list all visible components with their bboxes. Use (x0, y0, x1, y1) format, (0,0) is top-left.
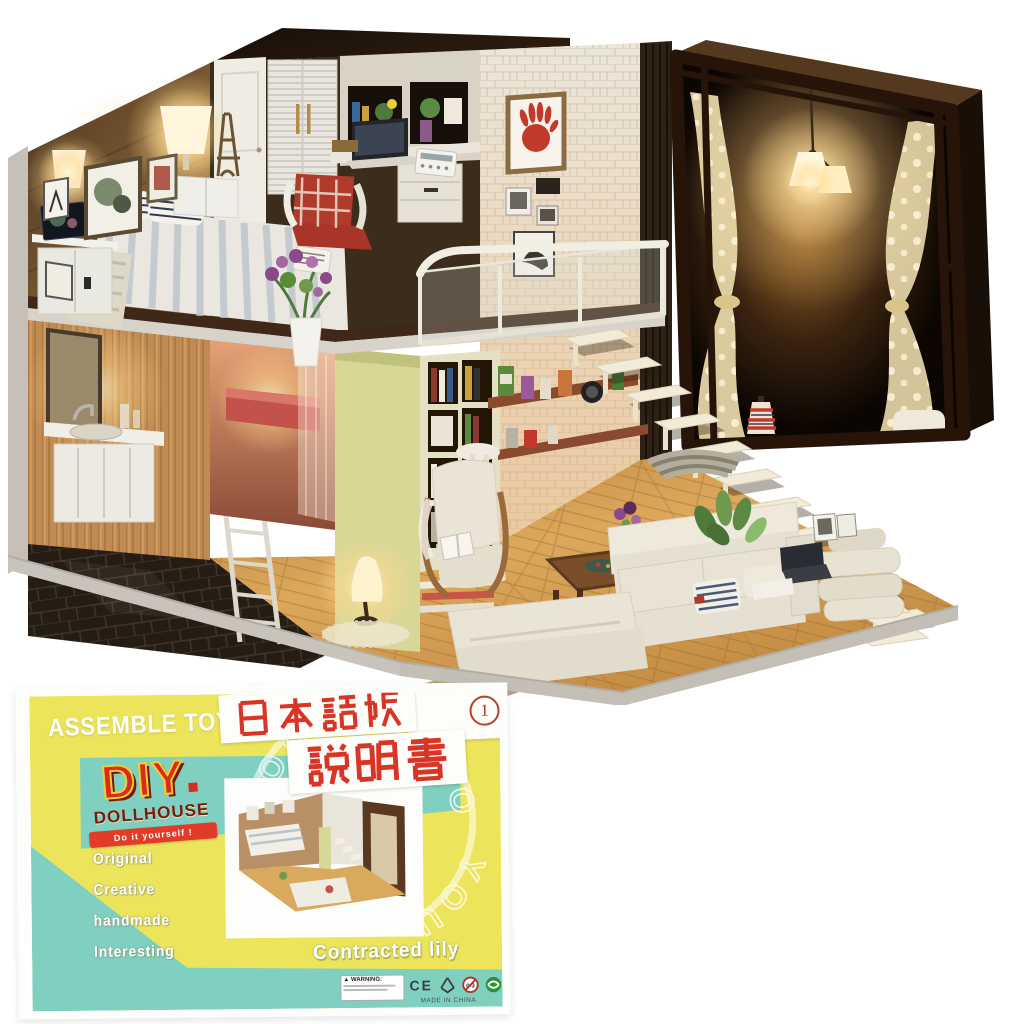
warning-triangle-icon: ▲ (343, 977, 349, 983)
wardrobe (268, 60, 337, 194)
handprint-picture (508, 94, 564, 172)
warning-text: WARNING: (351, 977, 382, 983)
ce-mark: CE (409, 974, 433, 996)
box-photo-thumbnail (224, 776, 424, 938)
calculator (415, 148, 457, 177)
feature-original: Original (93, 850, 153, 868)
made-in-text: MADE IN CHINA (421, 997, 477, 1005)
recycle-icon (438, 974, 456, 996)
jp-title-line2 (287, 729, 468, 794)
box-front-print: HOUSE ★ DO IT YOU ★ (29, 692, 502, 1012)
green-dot-icon (484, 974, 502, 996)
diy-dollhouse-logo: DIY DOLLHOUSE Do it yourself ! (67, 751, 233, 849)
warning-fineprint-line (343, 985, 395, 988)
feature-interesting: Interesting (94, 943, 175, 961)
circled-number-badge: 1 (469, 696, 499, 726)
nightstand-right (174, 176, 238, 218)
floor-lamp (316, 536, 416, 647)
warning-fineprint-line (343, 989, 387, 991)
feature-creative: Creative (93, 881, 155, 899)
screenshot: { "photo_colors": { "warm_glow": "#ffdf9… (0, 0, 1019, 1024)
product-name: Contracted lily (290, 938, 460, 966)
warning-label: ▲ WARNING: (340, 975, 404, 1002)
feature-handmade: handmade (94, 912, 171, 930)
diy-wordmark: DIY (99, 749, 187, 809)
diy-logo-dot (188, 782, 198, 792)
small-frame (536, 178, 560, 194)
striped-pillow (692, 577, 742, 615)
age-warning-icon: 0-3 (461, 974, 479, 996)
glass-display-box (674, 40, 994, 446)
product-box-photo: HOUSE ★ DO IT YOU ★ (15, 682, 510, 1019)
product-photo-dollhouse (0, 0, 1019, 705)
